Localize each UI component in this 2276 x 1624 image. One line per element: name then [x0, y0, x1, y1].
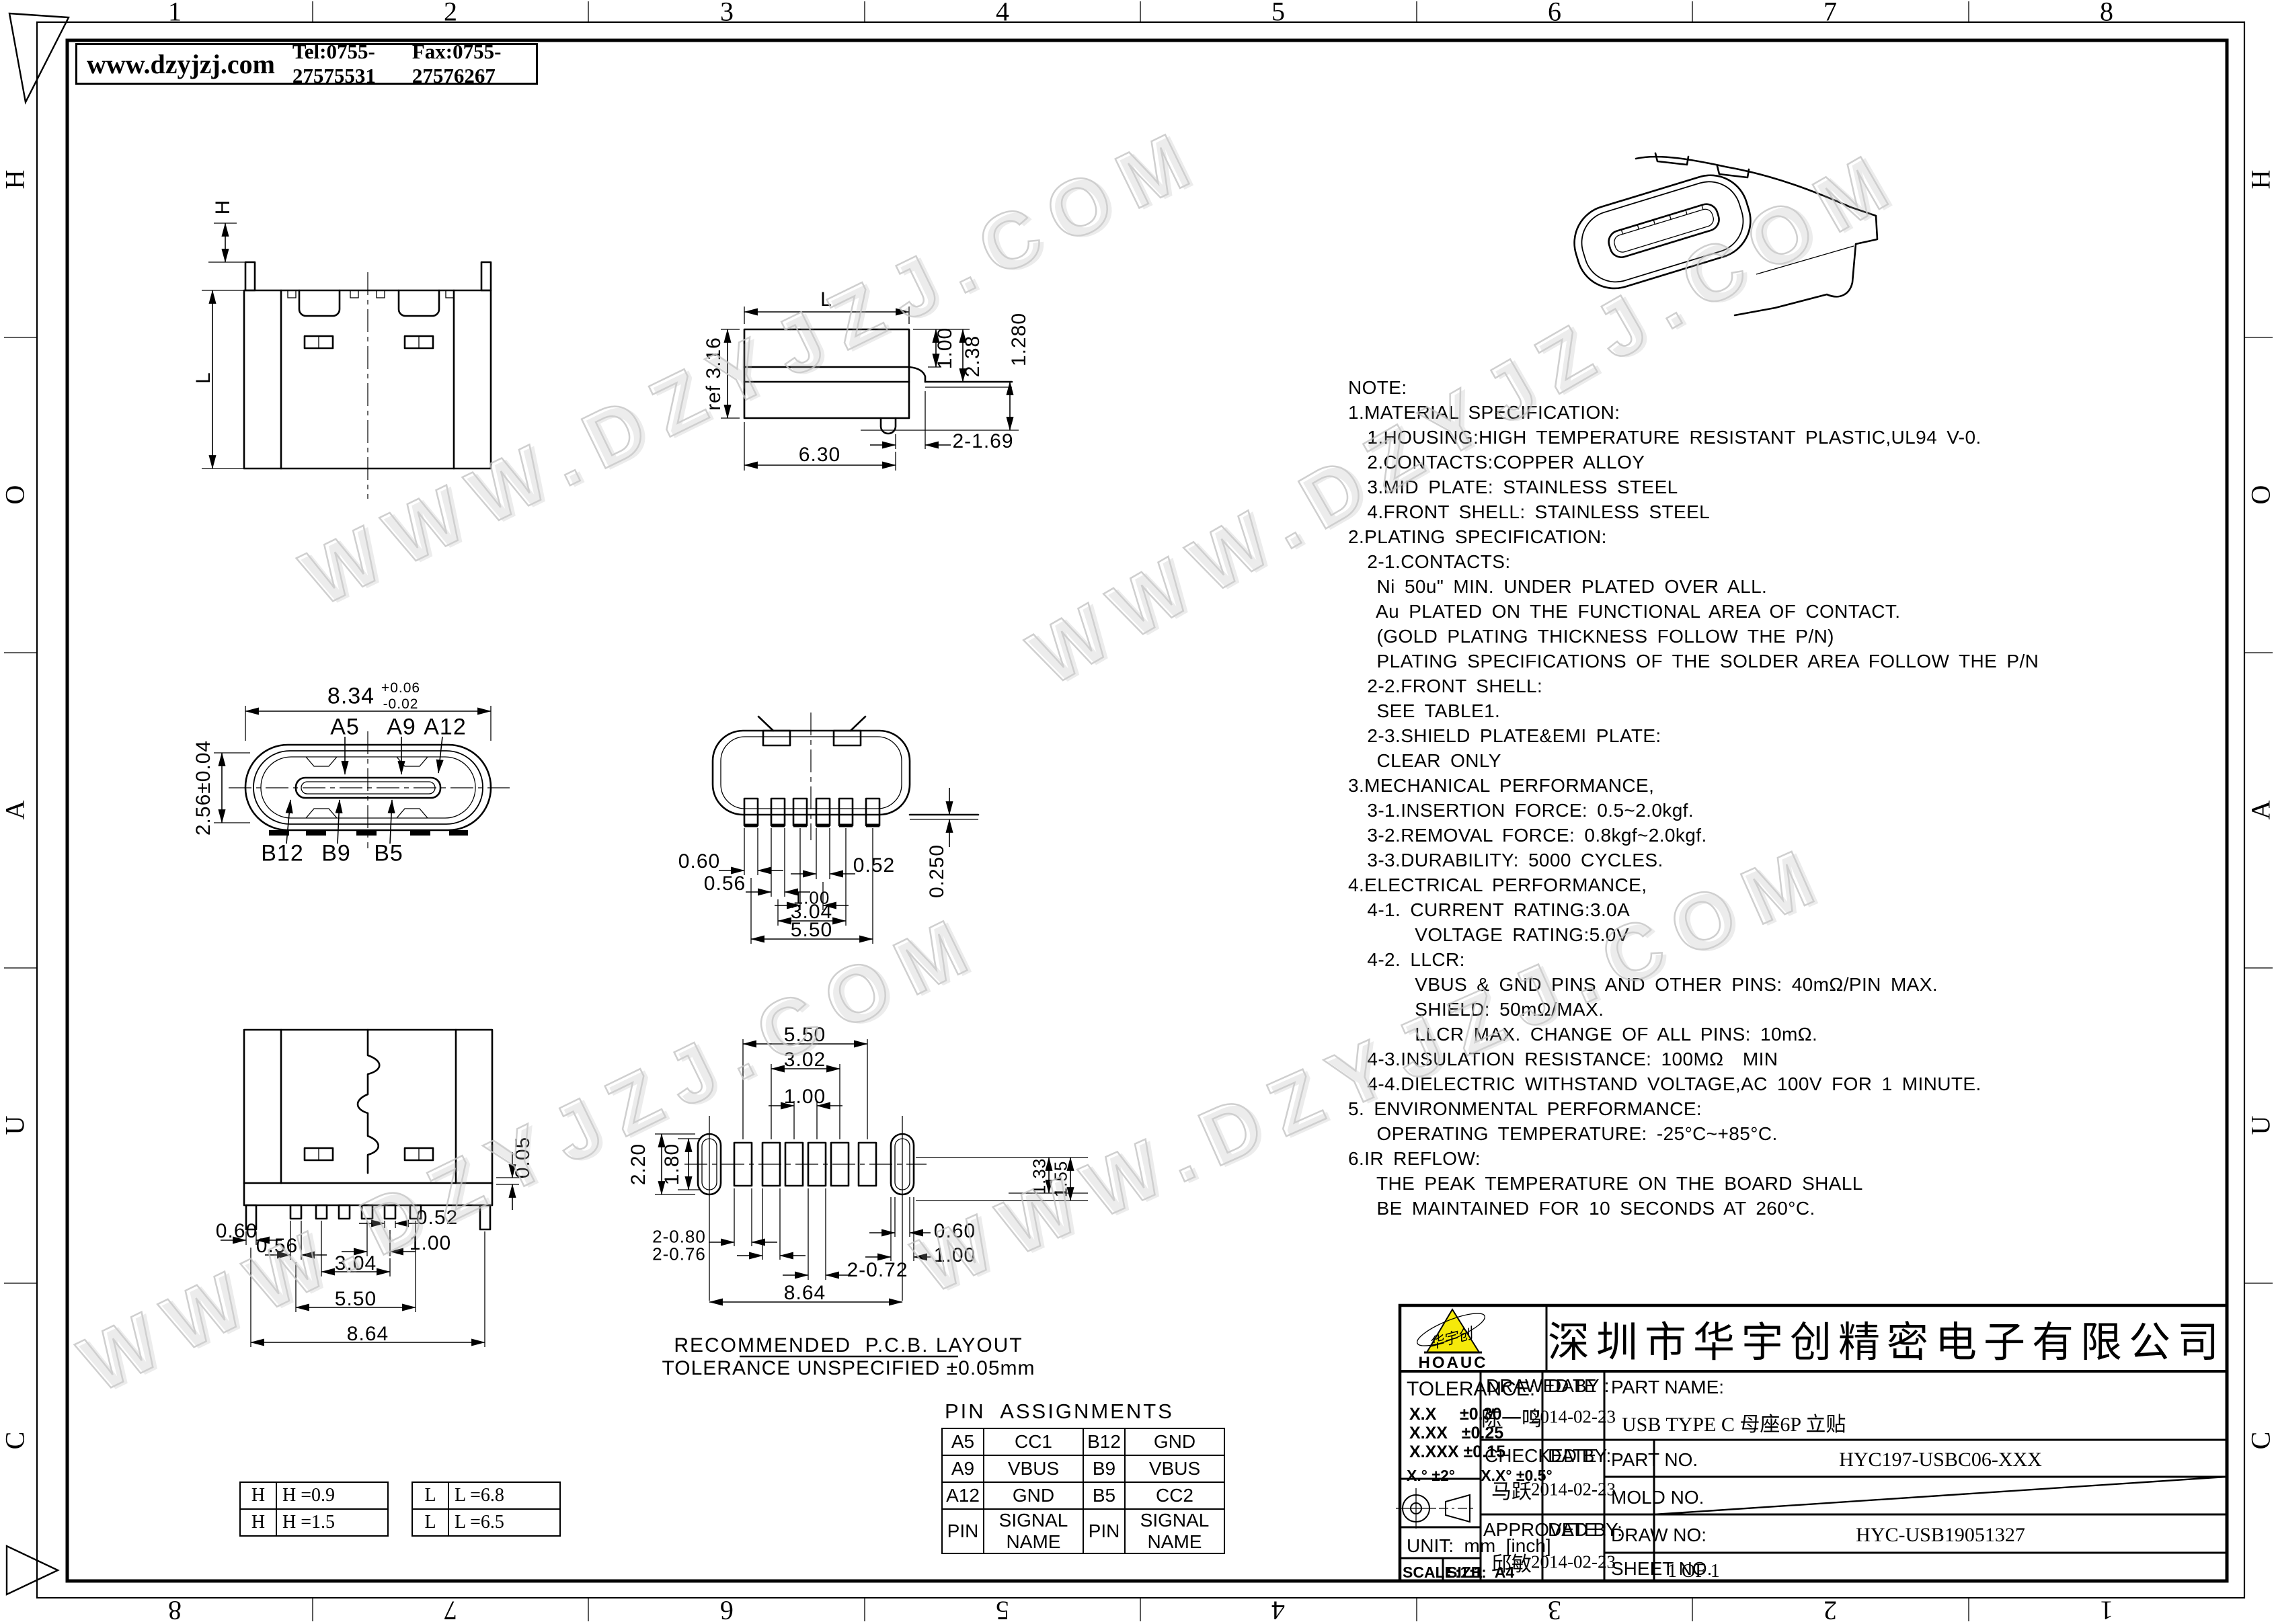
pin-label-B12: B12: [261, 841, 304, 867]
pin-table-title: PIN ASSIGNMENTS: [945, 1399, 1174, 1424]
signal-cell: GND: [984, 1482, 1083, 1509]
option-value: L =6.8: [448, 1482, 560, 1509]
dim-label-180: 1.80: [661, 1143, 684, 1185]
table-row: H H =1.5: [240, 1509, 388, 1536]
zone-label: U: [0, 1116, 31, 1135]
dim-label-864: 8.64: [347, 1323, 389, 1346]
option-value: L =6.5: [448, 1509, 560, 1536]
pin-label-A12: A12: [424, 715, 467, 741]
zone-label: 4: [996, 0, 1009, 28]
zone-label: 6: [1548, 0, 1561, 28]
mold-no-label: MOLD NO.: [1611, 1487, 1704, 1508]
dim-label-056: 0.56: [704, 872, 746, 895]
option-key: L: [412, 1482, 448, 1509]
part-name-value: USB TYPE C 母座6P 立贴: [1622, 1408, 1846, 1437]
dim-label-052: 0.52: [853, 854, 895, 877]
dim-label-220: 2.20: [627, 1143, 650, 1185]
zone-label: 7: [444, 1595, 457, 1624]
checked-date: 2014-02-23: [1531, 1479, 1616, 1500]
pin-cell: B5: [1083, 1482, 1125, 1509]
table-row: L L =6.8: [412, 1482, 560, 1509]
checked-by-name: 马跃: [1491, 1475, 1532, 1504]
dim-label-005: 0.05: [512, 1137, 535, 1178]
dim-label-2x072: 2-0.72: [847, 1259, 908, 1282]
dim-label-238: 2.38: [962, 335, 984, 377]
dim-label-0250: 0.250: [926, 844, 949, 898]
zone-label: 6: [720, 1595, 734, 1624]
pin-label-B9: B9: [321, 841, 351, 867]
zone-label: 7: [1823, 0, 1837, 28]
pcb-caption-tolerance: TOLERANCE UNSPECIFIED ±0.05mm: [662, 1357, 1035, 1380]
dim-label-550: 5.50: [335, 1288, 377, 1311]
dim-label-H: H: [212, 200, 235, 215]
dim-label-155: 1.55: [1051, 1161, 1072, 1198]
pcb-layout-linework: [655, 1039, 1088, 1356]
zone-label: C: [0, 1432, 31, 1450]
dim-label-052: 0.52: [416, 1207, 458, 1229]
signal-cell: CC1: [984, 1428, 1083, 1455]
notes-text: NOTE: 1.MATERIAL SPECIFICATION: 1.HOUSIN…: [1348, 375, 2039, 1221]
isometric-view-linework: [1565, 153, 1877, 315]
height-option-table: H H =0.9 H H =1.5: [239, 1481, 389, 1537]
zone-label: 3: [1548, 1595, 1561, 1624]
dim-label-060: 0.60: [678, 850, 720, 873]
pin-label-A5: A5: [330, 715, 360, 741]
date-label: DATE :: [1548, 1375, 1607, 1397]
table-row: H H =0.9: [240, 1482, 388, 1509]
tel-text: Tel:0755-27575531: [292, 40, 399, 88]
dim-label-304: 3.04: [335, 1252, 377, 1275]
pin-cell: B9: [1083, 1455, 1125, 1482]
part-no-label: PART NO.: [1611, 1449, 1698, 1471]
logo-brand-text: HOAUC: [1419, 1354, 1488, 1373]
table-row: L L =6.5: [412, 1509, 560, 1536]
zone-label: 1: [2100, 1595, 2113, 1624]
dim-label-056: 0.56: [256, 1235, 298, 1258]
dim-label-100: 1.00: [934, 327, 957, 369]
pin-cell: A12: [942, 1482, 984, 1509]
website-text: www.dzyjzj.com: [87, 48, 275, 80]
option-key: L: [412, 1509, 448, 1536]
signal-cell: CC2: [1125, 1482, 1224, 1509]
length-option-table: L L =6.8 L L =6.5: [411, 1481, 561, 1537]
pin-label-B5: B5: [374, 841, 403, 867]
dim-label-302: 3.02: [784, 1049, 826, 1071]
zone-label: 3: [720, 0, 734, 28]
zone-label: A: [0, 801, 31, 820]
dim-label-100b: 1.00: [934, 1244, 976, 1267]
pin-header-cell: PIN: [1083, 1509, 1125, 1553]
zone-label: 5: [996, 1595, 1009, 1624]
signal-cell: VBUS: [1125, 1455, 1224, 1482]
option-value: H =1.5: [276, 1509, 388, 1536]
header-contact-box: www.dzyjzj.com Tel:0755-27575531 Fax:075…: [75, 43, 538, 85]
zone-label: 2: [1823, 1595, 1837, 1624]
signal-header-cell: SIGNAL NAME: [984, 1509, 1083, 1553]
dim-label-L: L: [192, 372, 215, 384]
approved-date: 2014-02-23: [1531, 1552, 1616, 1573]
zone-label: 2: [444, 0, 457, 28]
pin-header-cell: PIN: [942, 1509, 984, 1553]
dim-label-ref316: ref 3.16: [703, 337, 725, 411]
date-label: DATE :: [1548, 1519, 1607, 1541]
part-name-label: PART NAME:: [1611, 1377, 1724, 1398]
front-view-linework: [202, 223, 491, 499]
zone-label: A: [2245, 801, 2276, 820]
dim-label-834: 8.34: [327, 684, 375, 710]
signal-cell: GND: [1125, 1428, 1224, 1455]
signal-cell: VBUS: [984, 1455, 1083, 1482]
dim-label-L: L: [820, 288, 832, 311]
dim-label-2x169: 2-1.69: [952, 430, 1013, 453]
pin-cell: A9: [942, 1455, 984, 1482]
zone-label: U: [2245, 1116, 2276, 1135]
date-label: DATE :: [1548, 1445, 1607, 1467]
zone-label: O: [0, 485, 31, 505]
approved-by-name: 邱敏: [1491, 1547, 1532, 1577]
dim-label-100a: 1.00: [784, 1086, 826, 1108]
zone-label: 1: [168, 0, 182, 28]
dim-label-630: 6.30: [799, 444, 840, 466]
sheet-no-value: 1 OF 1: [1667, 1561, 1720, 1582]
table-row: A12 GND B5 CC2: [942, 1482, 1224, 1509]
zone-label: H: [2245, 170, 2276, 190]
dim-label-060: 0.60: [934, 1220, 976, 1243]
dim-label-100: 1.00: [409, 1232, 451, 1255]
zone-label: C: [2245, 1432, 2276, 1450]
draw-no-label: DRAW NO:: [1611, 1525, 1706, 1546]
pin-cell: A5: [942, 1428, 984, 1455]
company-name: 深圳市华宇创精密电子有限公司: [1548, 1308, 2226, 1369]
dim-label-133: 1.33: [1029, 1158, 1050, 1195]
zone-label: 4: [1271, 1595, 1285, 1624]
dim-label-256: 2.56±0.04: [192, 740, 215, 836]
zone-label: 5: [1271, 0, 1285, 28]
table-row: A5 CC1 B12 GND: [942, 1428, 1224, 1455]
signal-header-cell: SIGNAL NAME: [1125, 1509, 1224, 1553]
zone-label: H: [0, 170, 31, 190]
pcb-caption-title: RECOMMENDED P.C.B. LAYOUT: [674, 1334, 1023, 1357]
bottom-view-linework: [713, 713, 978, 944]
table-row: PIN SIGNAL NAME PIN SIGNAL NAME: [942, 1509, 1224, 1553]
table-row: A9 VBUS B9 VBUS: [942, 1455, 1224, 1482]
dim-label-864: 8.64: [784, 1282, 826, 1305]
option-value: H =0.9: [276, 1482, 388, 1509]
dim-label-834-tol-minus: -0.02: [383, 696, 419, 713]
option-key: H: [240, 1509, 276, 1536]
pin-assignments-table: A5 CC1 B12 GND A9 VBUS B9 VBUS A12 GND B…: [941, 1428, 1225, 1554]
zone-label: 8: [168, 1595, 182, 1624]
drawing-sheet: WWW.DZYJZJ.COM WWW.DZYJZJ.COM WWW.DZYJZJ…: [0, 0, 2276, 1624]
zone-label: 8: [2100, 0, 2113, 28]
dim-label-1280: 1.280: [1008, 313, 1031, 366]
dim-label-2x076: 2-0.76: [652, 1244, 706, 1265]
draw-no-value: HYC-USB19051327: [1856, 1524, 2025, 1547]
drawn-date: 2014-02-23: [1531, 1407, 1616, 1428]
dim-label-550: 5.50: [791, 919, 832, 942]
zone-label: O: [2245, 485, 2276, 505]
pin-cell: B12: [1083, 1428, 1125, 1455]
part-no-value: HYC197-USBC06-XXX: [1839, 1449, 2042, 1471]
dim-label-550: 5.50: [784, 1024, 826, 1047]
dim-label-060: 0.60: [216, 1220, 258, 1243]
option-key: H: [240, 1482, 276, 1509]
dim-label-834-tol-plus: +0.06: [381, 680, 420, 696]
pin-label-A9: A9: [387, 715, 416, 741]
fax-text: Fax:0755-27576267: [412, 40, 522, 88]
